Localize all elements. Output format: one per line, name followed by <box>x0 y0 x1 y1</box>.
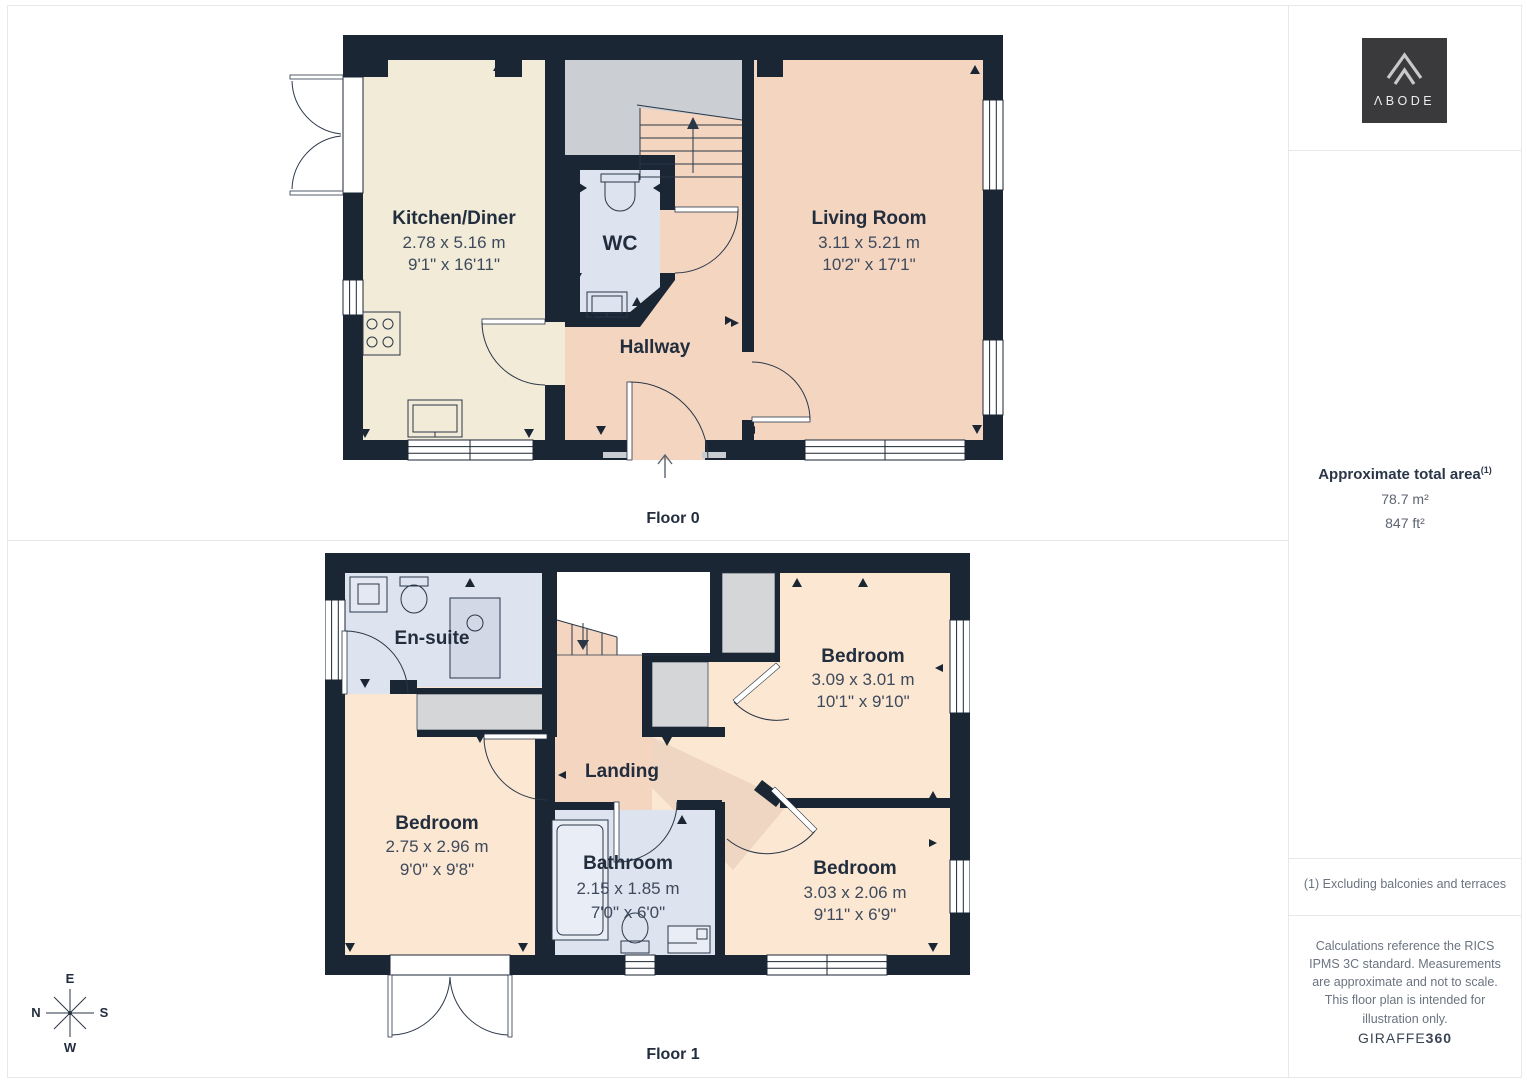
kitchen-dim-metric: 2.78 x 5.16 m <box>402 233 505 252</box>
closet-left-bedroom <box>417 694 547 730</box>
bedroom-left-french-doors <box>388 955 512 1037</box>
window-living-bottom <box>805 440 965 460</box>
sidebar: ΛBODE Approximate total area(1) 78.7 m² … <box>1289 5 1521 1078</box>
ensuite-label: En-suite <box>395 628 470 649</box>
bathroom-sink-icon <box>668 926 710 953</box>
wc-door-opening <box>660 210 675 273</box>
footnote: (1) Excluding balconies and terraces <box>1289 877 1521 891</box>
credit-suffix: 360 <box>1426 1030 1452 1046</box>
room-landing <box>552 655 652 810</box>
disclaimer: Calculations reference the RICS IPMS 3C … <box>1303 937 1507 1028</box>
bathroom-dim-imperial: 7'0" x 6'0" <box>591 903 665 922</box>
kitchen-dim-imperial: 9'1" x 16'11" <box>408 255 500 274</box>
sidebar-section-divider-2 <box>1289 858 1521 859</box>
compass-west: W <box>64 1040 77 1055</box>
abode-logo-text: ΛBODE <box>1374 94 1435 108</box>
window-bedroom-tr-right <box>950 620 970 713</box>
area-title-text: Approximate total area <box>1318 466 1481 483</box>
compass-east: E <box>66 971 75 986</box>
floor0-label: Floor 0 <box>343 510 1003 528</box>
window-bathroom-bottom <box>625 955 655 975</box>
window-kitchen-bottom <box>408 440 533 460</box>
bathroom-label: Bathroom <box>583 853 673 874</box>
sidebar-section-divider-1 <box>1289 150 1521 151</box>
floors-divider <box>8 540 1288 541</box>
kitchen-label: Kitchen/Diner <box>392 208 516 229</box>
area-summary: Approximate total area(1) 78.7 m² 847 ft… <box>1289 465 1521 531</box>
bedroom-br-dim-imperial: 9'11" x 6'9" <box>814 905 897 924</box>
living-dim-imperial: 10'2" x 17'1" <box>822 255 915 274</box>
front-door-sill-left <box>603 452 627 458</box>
hob-icon <box>363 312 400 355</box>
credit-brand: GIRAFFE <box>1358 1030 1426 1046</box>
hallway-label: Hallway <box>620 337 691 358</box>
bedroom-br-dim-metric: 3.03 x 2.06 m <box>803 883 906 902</box>
shower-tray-icon <box>350 577 387 612</box>
stair-cupboard <box>652 662 708 727</box>
kitchen-french-doors <box>290 75 363 195</box>
bedroom-left-dim-imperial: 9'0" x 9'8" <box>400 860 474 879</box>
floor0-plan: Kitchen/Diner 2.78 x 5.16 m 9'1" x 16'11… <box>268 35 1008 490</box>
bedroom-tr-dim-metric: 3.09 x 3.01 m <box>811 670 914 689</box>
sidebar-section-divider-3 <box>1289 915 1521 916</box>
kitchen-door-opening <box>545 322 565 385</box>
living-label: Living Room <box>811 208 926 229</box>
window-bedroom-br-right <box>950 860 970 913</box>
front-door-sill-right <box>702 452 726 458</box>
landing-label: Landing <box>585 761 659 782</box>
abode-logo-background <box>1362 38 1447 123</box>
bathroom-dim-metric: 2.15 x 1.85 m <box>576 879 679 898</box>
window-kitchen-left <box>343 280 363 315</box>
bedroom-left-label: Bedroom <box>395 813 478 834</box>
bedroom-tr-dim-imperial: 10'1" x 9'10" <box>816 692 909 711</box>
floor1-label: Floor 1 <box>343 1046 1003 1064</box>
wc-label: WC <box>603 232 638 255</box>
kitchen-sink-icon <box>408 400 462 437</box>
bedroom-br-label: Bedroom <box>813 858 896 879</box>
bedroom-tr-label: Bedroom <box>821 646 904 667</box>
front-door-opening <box>630 440 705 460</box>
floorplan-page: Kitchen/Diner 2.78 x 5.16 m 9'1" x 16'11… <box>0 0 1527 1080</box>
window-bedroom-br-bottom <box>767 955 887 975</box>
compass-rose: E S W N <box>20 963 120 1063</box>
giraffe360-credit: GIRAFFE360 <box>1289 1030 1521 1046</box>
bedroom-left-dim-metric: 2.75 x 2.96 m <box>385 837 488 856</box>
area-title: Approximate total area(1) <box>1289 465 1521 483</box>
area-ft2: 847 ft² <box>1289 515 1521 531</box>
area-m2: 78.7 m² <box>1289 491 1521 507</box>
area-footnote-marker: (1) <box>1481 465 1492 475</box>
floor1-plan: En-suite Bedroom 2.75 x 2.96 m 9'0" x 9'… <box>325 553 970 1045</box>
compass-south: S <box>100 1005 109 1020</box>
window-living-right-bottom <box>983 340 1003 415</box>
living-dim-metric: 3.11 x 5.21 m <box>818 233 920 252</box>
abode-logo: ΛBODE <box>1362 38 1447 123</box>
closet-top-right-bedroom <box>722 573 775 653</box>
compass-north: N <box>31 1005 40 1020</box>
window-living-right-top <box>983 100 1003 190</box>
